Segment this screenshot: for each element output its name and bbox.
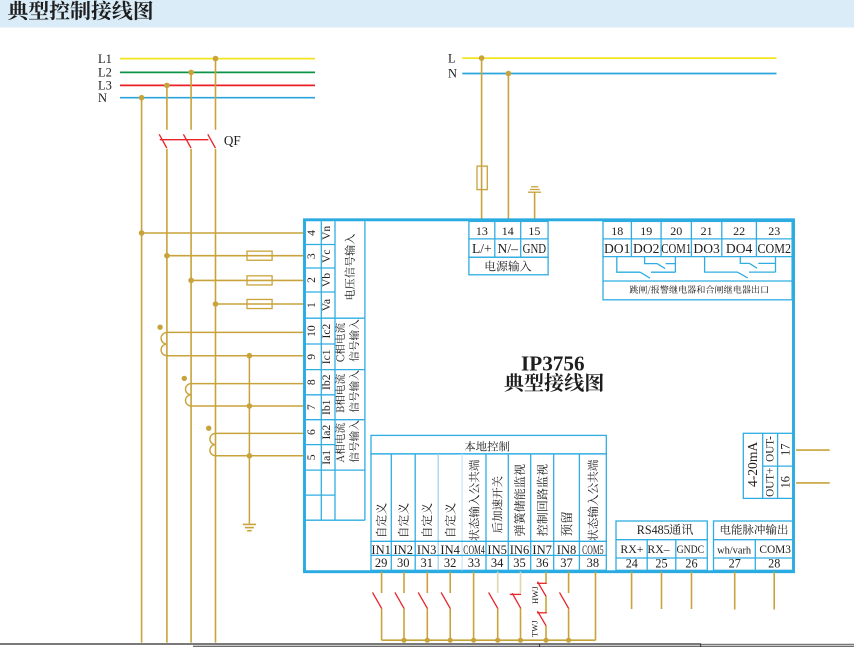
svg-text:DO3: DO3 [693, 241, 720, 256]
svg-text:Va: Va [320, 299, 333, 311]
svg-text:Ia2: Ia2 [320, 425, 333, 440]
svg-text:10: 10 [305, 325, 318, 337]
svg-text:5: 5 [305, 454, 318, 460]
svg-text:34: 34 [491, 556, 504, 570]
svg-text:24: 24 [626, 556, 638, 570]
svg-text:L2: L2 [98, 66, 112, 80]
svg-text:N: N [98, 91, 107, 105]
svg-text:GNDC: GNDC [677, 544, 705, 556]
svg-text:4: 4 [305, 230, 318, 236]
svg-text:Vn: Vn [320, 226, 333, 240]
svg-text:QF: QF [224, 133, 241, 148]
svg-text:22: 22 [733, 224, 745, 238]
svg-text:DO4: DO4 [726, 241, 753, 256]
svg-text:OUT-: OUT- [765, 436, 777, 462]
svg-text:19: 19 [640, 224, 652, 238]
svg-text:29: 29 [375, 556, 388, 570]
svg-text:L: L [448, 51, 456, 65]
svg-text:13: 13 [476, 224, 488, 238]
svg-text:21: 21 [701, 224, 713, 238]
svg-text:31: 31 [420, 556, 433, 570]
svg-text:Ic1: Ic1 [320, 349, 333, 364]
svg-text:28: 28 [768, 556, 780, 570]
svg-text:18: 18 [611, 224, 623, 238]
svg-text:Ic2: Ic2 [320, 323, 333, 338]
svg-text:HWJ: HWJ [530, 586, 540, 604]
svg-text:35: 35 [513, 556, 526, 570]
svg-text:36: 36 [536, 556, 549, 570]
svg-text:16: 16 [779, 476, 793, 488]
svg-text:3: 3 [305, 253, 318, 259]
svg-text:DO2: DO2 [633, 241, 660, 256]
svg-text:1: 1 [305, 302, 318, 308]
svg-text:30: 30 [397, 556, 410, 570]
svg-text:N/–: N/– [498, 241, 519, 256]
svg-text:Ib2: Ib2 [320, 374, 333, 390]
svg-text:25: 25 [655, 556, 667, 570]
svg-text:RS485: RS485 [637, 523, 670, 537]
svg-text:6: 6 [305, 429, 318, 435]
svg-text:IP3756: IP3756 [521, 351, 585, 375]
svg-text:COM1: COM1 [661, 241, 691, 256]
svg-text:RX+: RX+ [620, 542, 643, 556]
svg-text:Ib1: Ib1 [320, 399, 333, 415]
svg-text:9: 9 [305, 354, 318, 360]
svg-text:20: 20 [670, 224, 682, 238]
svg-text:14: 14 [502, 224, 514, 238]
svg-text:GND: GND [523, 241, 547, 256]
svg-text:7: 7 [305, 404, 318, 410]
svg-text:RX–: RX– [647, 542, 669, 556]
svg-text:L/+: L/+ [472, 241, 492, 256]
svg-text:Vc: Vc [320, 249, 333, 263]
svg-text:27: 27 [729, 556, 741, 570]
svg-text:OUT+: OUT+ [765, 468, 777, 497]
svg-text:N: N [448, 67, 457, 81]
svg-text:23: 23 [768, 224, 780, 238]
svg-text:33: 33 [468, 556, 481, 570]
svg-text:L1: L1 [98, 52, 112, 66]
svg-text:DO1: DO1 [604, 241, 630, 256]
svg-text:37: 37 [560, 556, 573, 570]
svg-text:TWJ: TWJ [529, 620, 539, 637]
svg-text:26: 26 [685, 556, 697, 570]
svg-text:Ia1: Ia1 [320, 450, 333, 465]
svg-text:COM2: COM2 [758, 241, 792, 256]
svg-text:Vb: Vb [320, 273, 333, 287]
svg-text:COM3: COM3 [759, 544, 791, 556]
svg-text:2: 2 [305, 277, 318, 283]
svg-text:17: 17 [779, 444, 793, 456]
svg-text:38: 38 [587, 556, 600, 570]
svg-text:15: 15 [528, 224, 540, 238]
svg-text:32: 32 [444, 556, 457, 570]
svg-text:4-20mA: 4-20mA [745, 442, 760, 487]
svg-text:wh/varh: wh/varh [717, 545, 752, 556]
svg-text:8: 8 [305, 379, 318, 385]
